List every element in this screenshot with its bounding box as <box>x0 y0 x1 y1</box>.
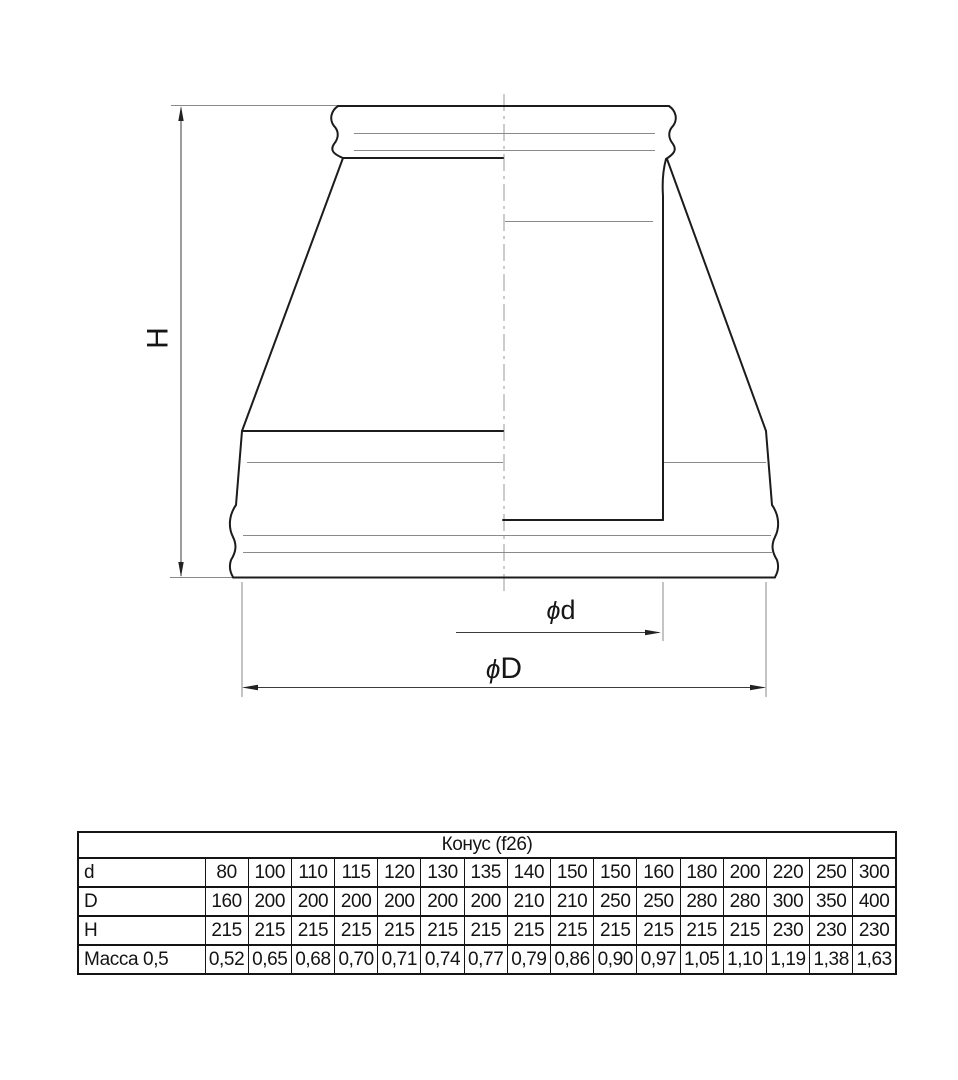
table-cell: 210 <box>507 887 550 916</box>
table-cell: 130 <box>421 858 464 887</box>
top-right-crimp <box>666 106 676 159</box>
thin-seam-lines <box>243 134 772 553</box>
table-title: Конус (f26) <box>78 832 896 858</box>
table-cell: 0,79 <box>507 945 550 974</box>
table-cell: 200 <box>248 887 291 916</box>
table-cell: 230 <box>810 916 853 945</box>
table-title-row: Конус (f26) <box>78 832 896 858</box>
table-cell: 400 <box>853 887 896 916</box>
table-cell: 215 <box>378 916 421 945</box>
table-cell: 215 <box>205 916 248 945</box>
table-cell: 1,38 <box>810 945 853 974</box>
table-cell: 210 <box>551 887 594 916</box>
extension-lines <box>170 106 766 698</box>
row-label: H <box>78 916 205 945</box>
technical-drawing: H ϕd ϕD <box>0 0 958 780</box>
table-cell: 215 <box>248 916 291 945</box>
cone-slope-right <box>667 159 766 431</box>
table-cell: 1,10 <box>723 945 766 974</box>
table-cell: 1,05 <box>680 945 723 974</box>
table-cell: 0,74 <box>421 945 464 974</box>
table-cell: 280 <box>680 887 723 916</box>
row-label: Масса 0,5 <box>78 945 205 974</box>
table-cell: 100 <box>248 858 291 887</box>
table-cell: 215 <box>335 916 378 945</box>
table-cell: 0,90 <box>594 945 637 974</box>
table-cell: 300 <box>853 858 896 887</box>
table-cell: 215 <box>723 916 766 945</box>
table-row: D160200200200200200200210210250250280280… <box>78 887 896 916</box>
base-right-crimp <box>766 431 778 577</box>
inner-pipe-wall <box>663 159 666 520</box>
table-cell: 230 <box>766 916 809 945</box>
table-cell: 80 <box>205 858 248 887</box>
table-cell: 150 <box>594 858 637 887</box>
table-cell: 200 <box>421 887 464 916</box>
arrow-right-icon <box>750 685 766 691</box>
arrow-right-icon <box>645 630 661 636</box>
table-cell: 150 <box>551 858 594 887</box>
table-cell: 160 <box>637 858 680 887</box>
row-label: D <box>78 887 205 916</box>
table-row: d801001101151201301351401501501601802002… <box>78 858 896 887</box>
table-cell: 120 <box>378 858 421 887</box>
table-cell: 215 <box>291 916 334 945</box>
table-cell: 0,52 <box>205 945 248 974</box>
table-cell: 200 <box>723 858 766 887</box>
top-left-crimp <box>331 106 343 158</box>
table-cell: 280 <box>723 887 766 916</box>
table-cell: 215 <box>507 916 550 945</box>
table-row: Масса 0,50,520,650,680,700,710,740,770,7… <box>78 945 896 974</box>
inner-diameter-dimension-label: ϕd <box>547 595 576 625</box>
table-cell: 1,19 <box>766 945 809 974</box>
table-cell: 0,71 <box>378 945 421 974</box>
table-cell: 160 <box>205 887 248 916</box>
table-cell: 200 <box>335 887 378 916</box>
table-cell: 350 <box>810 887 853 916</box>
table-cell: 1,63 <box>853 945 896 974</box>
table-cell: 0,97 <box>637 945 680 974</box>
table-cell: 0,70 <box>335 945 378 974</box>
table-cell: 200 <box>291 887 334 916</box>
table-cell: 140 <box>507 858 550 887</box>
table-cell: 135 <box>464 858 507 887</box>
table-cell: 0,86 <box>551 945 594 974</box>
arrow-down-icon <box>178 562 183 577</box>
table-cell: 200 <box>378 887 421 916</box>
table-cell: 110 <box>291 858 334 887</box>
table-cell: 0,77 <box>464 945 507 974</box>
dimension-D: ϕD <box>242 652 766 690</box>
table-cell: 250 <box>810 858 853 887</box>
height-dimension-label: H <box>142 327 175 349</box>
base-left-crimp <box>230 431 242 577</box>
table-cell: 250 <box>594 887 637 916</box>
page: H ϕd ϕD Конус (f26) <box>0 0 958 1080</box>
table-cell: 215 <box>594 916 637 945</box>
dimension-d: ϕd <box>456 595 661 635</box>
spec-table: Конус (f26) d801001101151201301351401501… <box>77 831 897 975</box>
table-cell: 215 <box>551 916 594 945</box>
outer-diameter-dimension-label: ϕD <box>486 652 522 685</box>
row-label: d <box>78 858 205 887</box>
table-cell: 0,68 <box>291 945 334 974</box>
table-cell: 300 <box>766 887 809 916</box>
cone-slope-left <box>242 158 343 431</box>
table-row: H215215215215215215215215215215215215215… <box>78 916 896 945</box>
dimension-H: H <box>142 106 184 577</box>
table-cell: 180 <box>680 858 723 887</box>
table-cell: 220 <box>766 858 809 887</box>
table-cell: 215 <box>637 916 680 945</box>
arrow-left-icon <box>242 685 258 691</box>
table-cell: 115 <box>335 858 378 887</box>
table-cell: 0,65 <box>248 945 291 974</box>
table-cell: 200 <box>464 887 507 916</box>
table-cell: 250 <box>637 887 680 916</box>
table-cell: 230 <box>853 916 896 945</box>
table-cell: 215 <box>680 916 723 945</box>
table-cell: 215 <box>421 916 464 945</box>
arrow-up-icon <box>178 106 183 121</box>
table-cell: 215 <box>464 916 507 945</box>
